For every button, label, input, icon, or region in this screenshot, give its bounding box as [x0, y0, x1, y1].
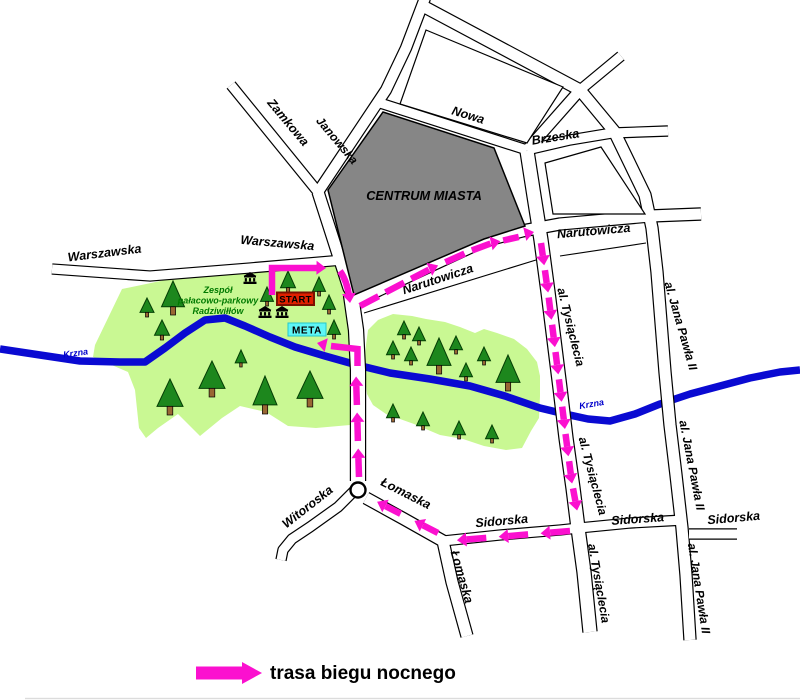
- svg-text:trasa biegu nocnego: trasa biegu nocnego: [270, 663, 456, 684]
- svg-text:pałacowo-parkowy: pałacowo-parkowy: [177, 296, 260, 306]
- svg-text:CENTRUM MIASTA: CENTRUM MIASTA: [366, 188, 482, 203]
- svg-text:META: META: [292, 326, 322, 337]
- svg-text:START: START: [279, 295, 311, 306]
- svg-text:Zespół: Zespół: [202, 285, 233, 295]
- svg-text:Radziwiłłów: Radziwiłłów: [192, 306, 244, 316]
